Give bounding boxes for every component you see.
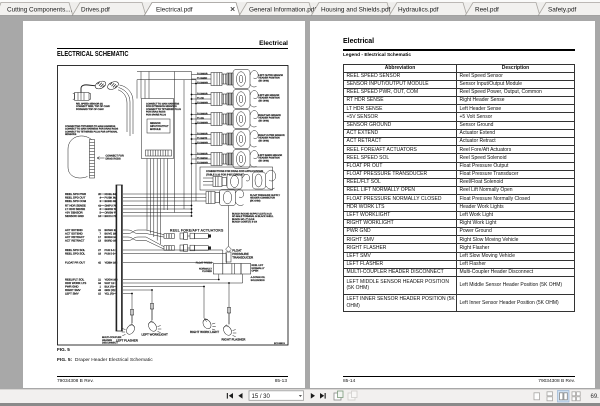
- svg-text:T1 GN: T1 GN: [197, 117, 204, 120]
- svg-text:T3 BN/WH: T3 BN/WH: [197, 82, 208, 85]
- svg-text:CONNECT REEL TOP OF CANV: CONNECT REEL TOP OF CANV: [76, 105, 110, 108]
- svg-text:15 / 30: 15 / 30: [252, 394, 271, 400]
- svg-text:Hydraulics.pdf: Hydraulics.pdf: [398, 7, 439, 14]
- svg-text:RIGHT OUTER SENSOR: RIGHT OUTER SENSOR: [259, 134, 285, 137]
- svg-text:T1 BN/BK: T1 BN/BK: [197, 77, 208, 80]
- svg-text:PUB 5-2: PUB 5-2: [105, 253, 115, 256]
- svg-text:Housing and Shields.pdf: Housing and Shields.pdf: [321, 7, 391, 14]
- svg-text:(TABLE 3.10 FOR P & L CIRCUIT): (TABLE 3.10 FOR P & L CIRCUIT): [206, 174, 245, 177]
- svg-text:FORWARD TOP OF CANV: FORWARD TOP OF CANV: [76, 108, 104, 111]
- svg-text:FOR EXTENSION SENSORS: FOR EXTENSION SENSORS: [146, 105, 177, 108]
- svg-text:T3 BN/WH: T3 BN/WH: [197, 162, 208, 165]
- svg-text:LEFT WORKLIGHT: LEFT WORKLIGHT: [142, 333, 168, 337]
- svg-text:ECC4367A: ECC4367A: [274, 342, 285, 345]
- svg-text:LEFT INNER SENSOR: LEFT INNER SENSOR: [259, 154, 283, 157]
- svg-text:CONNECT TO MAIN HARNESS FOR DR: CONNECT TO MAIN HARNESS FOR DRAG RODS: [65, 128, 119, 131]
- svg-text:T4 BN/OR: T4 BN/OR: [197, 153, 208, 156]
- svg-text:Safety.pdf: Safety.pdf: [548, 7, 577, 14]
- svg-text:CLOSED: CLOSED: [202, 270, 212, 273]
- svg-text:(5K OHM): (5K OHM): [259, 139, 270, 142]
- svg-text:NO MALE TERMINAL IN BLACK SHEL: NO MALE TERMINAL IN BLACK SHELL: [232, 215, 274, 218]
- svg-text:T4 BN/OR: T4 BN/OR: [197, 133, 208, 136]
- svg-text:LEFT MID SENSOR: LEFT MID SENSOR: [259, 94, 280, 97]
- svg-text:Electrical.pdf: Electrical.pdf: [156, 7, 193, 14]
- svg-text:FLOAT PR OUT: FLOAT PR OUT: [65, 261, 85, 265]
- svg-text:SOLENOIDS: SOLENOIDS: [251, 279, 265, 282]
- svg-text:13: 13: [98, 240, 101, 243]
- svg-text:BR/CH 71: BR/CH 71: [105, 215, 117, 218]
- svg-text:(5K OHM): (5K OHM): [259, 159, 270, 162]
- svg-text:LEFT FLASHER: LEFT FLASHER: [116, 339, 139, 343]
- svg-text:69.: 69.: [591, 394, 600, 400]
- svg-text:CONNECT TO TETHERED PLUG FOR O: CONNECT TO TETHERED PLUG FOR OPTIONAL: [65, 130, 118, 133]
- svg-text:(5K OHM): (5K OHM): [259, 99, 270, 102]
- svg-text:16: 16: [98, 215, 101, 218]
- svg-text:HEADER CONNECTOR: HEADER CONNECTOR: [250, 197, 275, 200]
- svg-text:Cutting Components....: Cutting Components....: [7, 7, 73, 14]
- svg-text:T1 BN/YE: T1 BN/YE: [197, 137, 208, 140]
- svg-text:BUNCH CONN (T) 3-1/4: BUNCH CONN (T) 3-1/4: [232, 221, 258, 224]
- svg-text:FLOAT PRESSURE SUPPLY: FLOAT PRESSURE SUPPLY: [250, 194, 280, 197]
- svg-text:T3 BN/WH: T3 BN/WH: [197, 102, 208, 105]
- svg-text:42: 42: [98, 262, 101, 265]
- svg-text:T4 BN/OR: T4 BN/OR: [197, 93, 208, 96]
- svg-text:SENSOR GND: SENSOR GND: [65, 214, 84, 218]
- svg-text:CONNECTING TETHERED TO MAIN HA: CONNECTING TETHERED TO MAIN HARNESS: [65, 125, 116, 128]
- svg-text:MODULE: MODULE: [150, 128, 161, 131]
- svg-text:ACT RETRACT: ACT RETRACT: [65, 239, 85, 243]
- svg-text:BK/RD 62: BK/RD 62: [105, 200, 117, 203]
- svg-text:OPEN: OPEN: [252, 270, 259, 273]
- svg-text:HEADER POSITION: HEADER POSITION: [259, 157, 281, 160]
- svg-text:LEFT OUTER SENSOR: LEFT OUTER SENSOR: [259, 74, 284, 77]
- svg-text:General Information.pdf: General Information.pdf: [249, 7, 316, 14]
- svg-text:REL SPEED SENSOR (S): REL SPEED SENSOR (S): [76, 103, 103, 106]
- svg-text:HEADER POSITION: HEADER POSITION: [259, 137, 281, 140]
- svg-text:T3 BN/WH: T3 BN/WH: [197, 142, 208, 145]
- svg-text:BUNCH NO. (T) 3-1/8: BUNCH NO. (T) 3-1/8: [232, 218, 255, 221]
- svg-text:(5K OHM): (5K OHM): [259, 119, 270, 122]
- svg-text:REEL SPD SOL: REEL SPD SOL: [65, 252, 86, 256]
- svg-text:(5K OHM): (5K OHM): [259, 79, 270, 82]
- svg-text:REEL FORE/AFT ACTUATORS: REEL FORE/AFT ACTUATORS: [170, 228, 224, 232]
- svg-text:CONNECT TO MAIN HARNESS: CONNECT TO MAIN HARNESS: [146, 103, 180, 106]
- svg-text:T1 OR: T1 OR: [197, 97, 204, 100]
- svg-text:T3 BN/WH: T3 BN/WH: [197, 122, 208, 125]
- svg-text:RIGHT FLASHER: RIGHT FLASHER: [222, 338, 247, 342]
- svg-text:SENSORS: SENSORS: [65, 133, 77, 136]
- svg-text:3: 3: [100, 200, 102, 203]
- svg-text:HEADER POSITION: HEADER POSITION: [259, 97, 281, 100]
- svg-text:LEFT SMV: LEFT SMV: [65, 292, 79, 296]
- svg-text:HEADER POSITION: HEADER POSITION: [259, 77, 281, 80]
- svg-text:T4 BN/OR: T4 BN/OR: [197, 73, 208, 76]
- svg-text:YE/BN 155: YE/BN 155: [105, 262, 118, 265]
- svg-text:DRAG RODS: DRAG RODS: [106, 158, 121, 161]
- svg-text:YEL (R): YEL (R): [105, 293, 114, 296]
- svg-text:FOR DRAG RODS: FOR DRAG RODS: [146, 111, 166, 114]
- svg-text:HEADER POSITION: HEADER POSITION: [259, 117, 281, 120]
- svg-text:REEL SPD COM: REEL SPD COM: [65, 199, 87, 203]
- svg-text:RIGHT WORK LIGHT: RIGHT WORK LIGHT: [190, 330, 219, 334]
- svg-text:CONNECT TO TETHERED PLUG: CONNECT TO TETHERED PLUG: [146, 108, 181, 111]
- svg-text:(5K OHM): (5K OHM): [250, 199, 261, 202]
- svg-text:15: 15: [98, 293, 101, 296]
- svg-text:BUNCH ROUND SUPPLY (LIST) 3-1/: BUNCH ROUND SUPPLY (LIST) 3-1/2: [232, 213, 272, 216]
- svg-text:Drives.pdf: Drives.pdf: [81, 7, 110, 14]
- svg-text:FOR SPARE PLUG: FOR SPARE PLUG: [146, 113, 166, 116]
- svg-text:T4 BN/OR: T4 BN/OR: [197, 113, 208, 116]
- svg-text:FLOAT PRESS: FLOAT PRESS: [196, 262, 213, 265]
- svg-text:Reel.pdf: Reel.pdf: [475, 7, 499, 14]
- svg-text:18: 18: [98, 253, 101, 256]
- svg-text:TRANSDUCER: TRANSDUCER: [232, 256, 254, 260]
- svg-text:BK/RD 15: BK/RD 15: [105, 240, 117, 243]
- svg-text:RIGHT MID SENSOR: RIGHT MID SENSOR: [259, 114, 282, 117]
- svg-text:T1 BN/GN: T1 BN/GN: [197, 157, 208, 160]
